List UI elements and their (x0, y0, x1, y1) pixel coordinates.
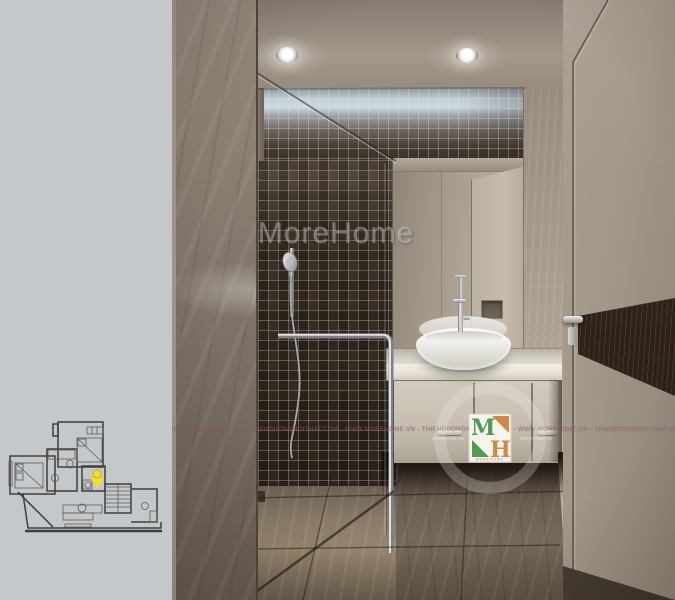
door-panel-groove (563, 0, 675, 600)
door-handle (563, 316, 583, 323)
logo-side-text-left: MOREHOME.VN (432, 436, 464, 441)
watermark-morehome: MoreHome (258, 217, 518, 251)
glass-panel-edge (257, 73, 396, 535)
page-background: WWW.MOREHOME.VN - THIENDUONGNOITHAT.COM … (0, 0, 675, 600)
watermark-strip: WWW.MOREHOME.VN - THIENDUONGNOITHAT.COM … (172, 426, 675, 436)
watermark-logo: MOREHOME.VN MOREHOME.VN M H MOREHOME (428, 378, 552, 502)
grab-bar-glass-frame (278, 335, 391, 553)
door-lock-plate (568, 327, 576, 345)
marble-wall-left (172, 0, 258, 600)
floor-plan-furniture (9, 427, 157, 527)
logo-side-text-right: MOREHOME.VN (520, 436, 552, 441)
entry-door (563, 0, 675, 600)
ceiling-cove-shadow (258, 88, 525, 89)
logo-subtext: MOREHOME (476, 458, 504, 462)
floor-plan (4, 414, 172, 558)
shower-floor-track (253, 491, 394, 594)
